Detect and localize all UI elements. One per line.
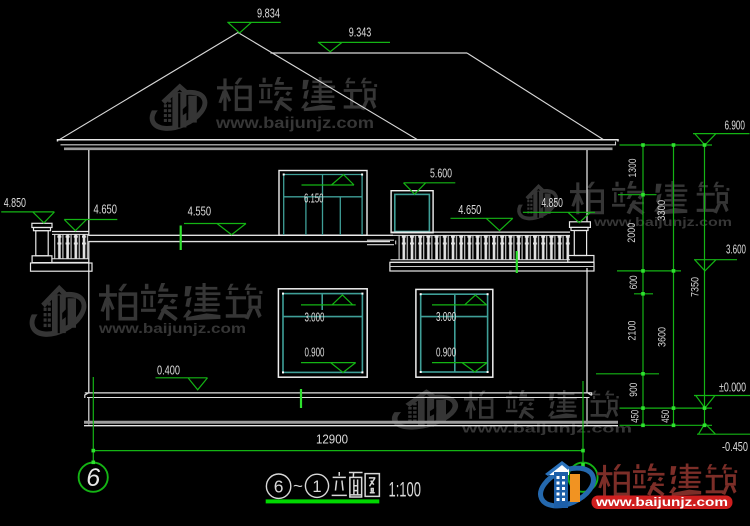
- svg-text:3300: 3300: [656, 200, 668, 221]
- svg-text:6: 6: [86, 464, 100, 492]
- svg-text:5.600: 5.600: [430, 166, 452, 181]
- svg-text:4.850: 4.850: [541, 195, 563, 210]
- svg-text:-0.450: -0.450: [722, 439, 748, 454]
- svg-text:1:100: 1:100: [389, 479, 421, 502]
- svg-text:1: 1: [312, 478, 321, 496]
- svg-text:600: 600: [628, 275, 640, 289]
- svg-text:4.550: 4.550: [188, 204, 212, 219]
- svg-text:www.baijunjz.com: www.baijunjz.com: [98, 320, 246, 336]
- svg-text:3.600: 3.600: [726, 242, 746, 257]
- svg-text:0.900: 0.900: [305, 345, 325, 360]
- svg-text:1300: 1300: [627, 159, 639, 178]
- svg-text:3.000: 3.000: [436, 309, 456, 324]
- svg-text:12900: 12900: [316, 432, 348, 447]
- svg-text:~: ~: [293, 477, 303, 496]
- svg-text:900: 900: [628, 383, 640, 397]
- svg-text:3.000: 3.000: [305, 310, 325, 325]
- svg-text:9.343: 9.343: [349, 25, 372, 40]
- svg-text:6.150: 6.150: [304, 191, 324, 206]
- svg-text:www.baijunjz.com: www.baijunjz.com: [595, 497, 728, 509]
- svg-text:2000: 2000: [626, 223, 638, 243]
- svg-text:450: 450: [660, 410, 672, 423]
- svg-text:0.900: 0.900: [436, 345, 456, 360]
- svg-text:0.400: 0.400: [157, 363, 180, 378]
- svg-text:4.650: 4.650: [94, 202, 118, 217]
- svg-text:2100: 2100: [626, 321, 638, 341]
- svg-text:7350: 7350: [690, 277, 702, 297]
- svg-text:www.baijunjz.com: www.baijunjz.com: [215, 115, 374, 132]
- svg-text:6.900: 6.900: [725, 118, 746, 133]
- svg-text:4.650: 4.650: [458, 202, 481, 217]
- svg-text:6: 6: [274, 477, 284, 497]
- svg-text:3600: 3600: [657, 327, 669, 347]
- svg-text:±0.000: ±0.000: [719, 380, 746, 395]
- svg-text:9.834: 9.834: [257, 6, 280, 21]
- svg-text:450: 450: [629, 410, 641, 423]
- svg-text:4.850: 4.850: [4, 195, 26, 210]
